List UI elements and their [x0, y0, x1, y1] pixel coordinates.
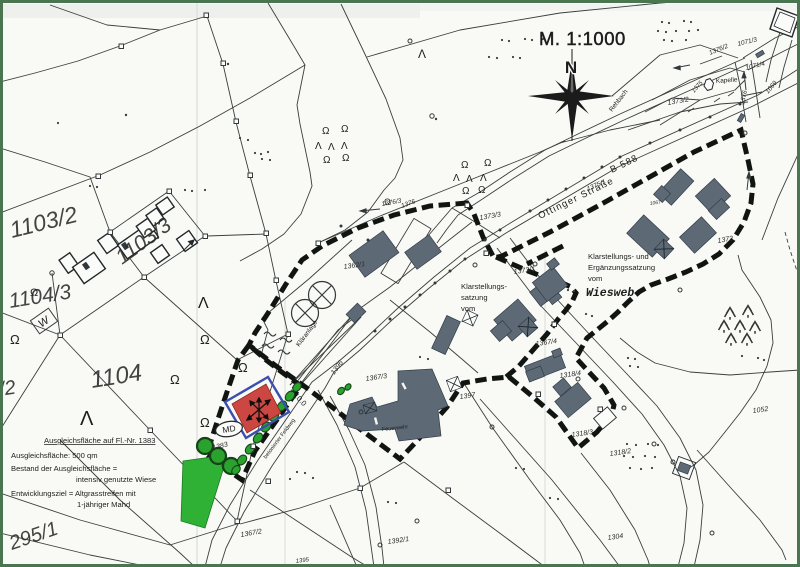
svg-text:vom: vom — [588, 274, 602, 283]
svg-text:Ω: Ω — [30, 287, 38, 299]
svg-text:Ω: Ω — [10, 332, 20, 347]
svg-text:Λ: Λ — [80, 408, 94, 430]
svg-text:Wiesweb: Wiesweb — [586, 287, 634, 300]
svg-text:Ω: Ω — [461, 160, 469, 171]
svg-text:Ω: Ω — [484, 158, 492, 169]
svg-text:Entwicklungsziel = Altgrasst: Entwicklungsziel = Altgrasstreifen mit — [11, 489, 137, 498]
svg-text:Λ: Λ — [328, 142, 335, 153]
svg-text:Ω: Ω — [342, 153, 350, 164]
svg-text:Ω: Ω — [323, 155, 331, 166]
svg-text:intensiv genutzte Wiese: intensiv genutzte Wiese — [76, 475, 156, 484]
svg-text:Λ: Λ — [315, 141, 322, 152]
svg-text:Ω: Ω — [462, 186, 470, 197]
svg-text:satzung: satzung — [461, 293, 488, 302]
svg-text:Klarstellungs- und: Klarstellungs- und — [588, 252, 649, 261]
svg-text:Bestand der Ausgleichsfläche =: Bestand der Ausgleichsfläche = — [11, 464, 118, 473]
svg-text:Λ: Λ — [453, 173, 460, 184]
svg-text:Λ: Λ — [480, 173, 487, 184]
svg-text:Ausgleichsfläche auf Fl.-Nr. 1: Ausgleichsfläche auf Fl.-Nr. 1383 — [44, 436, 155, 445]
svg-text:1-jähriger Mahd: 1-jähriger Mahd — [77, 500, 130, 509]
svg-text:Ω: Ω — [384, 197, 391, 207]
svg-text:Λ: Λ — [418, 47, 426, 61]
svg-text:Ω: Ω — [238, 360, 248, 375]
svg-text:Λ: Λ — [198, 295, 209, 312]
svg-text:Ω: Ω — [170, 372, 180, 387]
svg-text:Ausgleichsfläche: 500 qm: Ausgleichsfläche: 500 qm — [11, 451, 98, 460]
svg-text:Ω: Ω — [200, 332, 210, 347]
svg-text:Ergänzungssatzung: Ergänzungssatzung — [588, 263, 655, 272]
svg-text:Klarstellungs-: Klarstellungs- — [461, 282, 507, 291]
svg-text:Ω: Ω — [200, 415, 210, 430]
svg-text:N: N — [565, 58, 577, 77]
svg-text:Ω: Ω — [341, 124, 349, 135]
svg-text:Ω: Ω — [322, 126, 330, 137]
svg-text:Ω: Ω — [478, 185, 486, 196]
svg-text:vom: vom — [461, 304, 475, 313]
svg-text:M. 1:1000: M. 1:1000 — [539, 28, 626, 49]
svg-text:Λ: Λ — [341, 141, 348, 152]
svg-text:Λ: Λ — [466, 174, 473, 185]
